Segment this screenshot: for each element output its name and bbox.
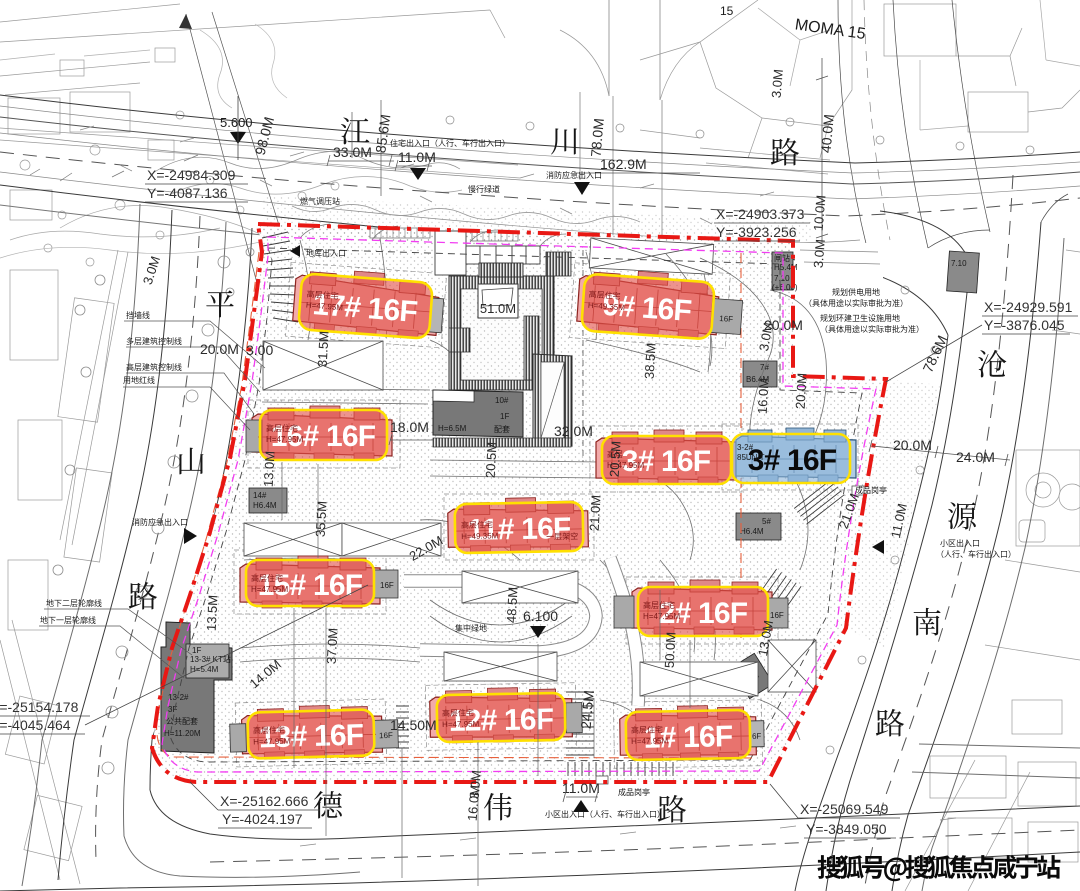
- svg-text:（人行、车行出入口）: （人行、车行出入口）: [936, 549, 1016, 559]
- svg-text:3.00: 3.00: [246, 342, 273, 358]
- svg-text:配套: 配套: [494, 424, 510, 434]
- svg-text:H6.4M: H6.4M: [740, 527, 764, 536]
- svg-text:高层住宅: 高层住宅: [442, 707, 474, 718]
- svg-text:（具体用途以实际审批为准）: （具体用途以实际审批为准）: [804, 298, 908, 308]
- svg-text:（具体用途以实际审批为准）: （具体用途以实际审批为准）: [820, 324, 924, 334]
- svg-text:13.5M: 13.5M: [204, 595, 221, 632]
- svg-text:7.10: 7.10: [774, 274, 790, 283]
- svg-text:挡墙线: 挡墙线: [126, 310, 150, 320]
- svg-text:H=47.95M: H=47.95M: [643, 612, 680, 621]
- svg-text:10#: 10#: [495, 396, 509, 405]
- svg-text:18.0M: 18.0M: [390, 419, 429, 435]
- svg-text:24.0M: 24.0M: [956, 449, 995, 465]
- svg-text:48.5M: 48.5M: [504, 587, 521, 624]
- svg-text:高层住宅: 高层住宅: [461, 519, 493, 530]
- svg-text:H=47.95M: H=47.95M: [631, 736, 669, 746]
- svg-text:Y=-4024.197: Y=-4024.197: [222, 811, 303, 827]
- svg-text:闸站: 闸站: [774, 253, 790, 263]
- svg-text:Y=-3923.256: Y=-3923.256: [716, 224, 797, 240]
- svg-text:Y=-3876.045: Y=-3876.045: [984, 317, 1065, 333]
- svg-text:85UNIT: 85UNIT: [737, 453, 765, 462]
- svg-text:16F: 16F: [770, 611, 784, 620]
- svg-text:高层住宅: 高层住宅: [266, 423, 298, 433]
- svg-text:X=-24929.591: X=-24929.591: [984, 299, 1073, 315]
- svg-text:H=47.95M: H=47.95M: [251, 585, 288, 594]
- svg-text:高层住宅: 高层住宅: [253, 725, 285, 736]
- svg-text:40.0M: 40.0M: [818, 114, 837, 154]
- svg-text:20.5M: 20.5M: [483, 442, 500, 479]
- svg-text:3F: 3F: [168, 705, 177, 714]
- svg-text:集中绿地: 集中绿地: [455, 623, 487, 633]
- svg-text:5.600: 5.600: [220, 115, 253, 130]
- svg-text:住宅出入口（人行、车行出入口）: 住宅出入口（人行、车行出入口）: [390, 138, 510, 148]
- svg-text:38.5M: 38.5M: [642, 343, 659, 380]
- svg-text:14.50M: 14.50M: [390, 717, 437, 733]
- svg-text:3.0M: 3.0M: [769, 69, 786, 99]
- svg-text:小区出入口（人行、车行出入口）: 小区出入口（人行、车行出入口）: [545, 809, 665, 819]
- svg-text:H=47.95M: H=47.95M: [266, 435, 303, 444]
- svg-text:消防应急出入口: 消防应急出入口: [132, 517, 188, 527]
- svg-text:成品岗亭: 成品岗亭: [618, 787, 650, 797]
- svg-text:11.0M: 11.0M: [562, 780, 600, 796]
- svg-text:20.0M: 20.0M: [893, 437, 932, 453]
- svg-text:16F: 16F: [719, 314, 733, 324]
- svg-text:3.0M: 3.0M: [467, 770, 484, 800]
- svg-text:规划环建卫生设施用地: 规划环建卫生设施用地: [820, 313, 900, 323]
- svg-text:X=-25162.666: X=-25162.666: [220, 793, 309, 809]
- svg-text:20.0M: 20.0M: [764, 317, 803, 333]
- svg-text:31.5M: 31.5M: [315, 331, 332, 368]
- svg-text:H=47.95M: H=47.95M: [253, 737, 291, 747]
- svg-text:13.0M: 13.0M: [261, 451, 278, 488]
- svg-text:公共配套: 公共配套: [166, 716, 198, 726]
- svg-text:X=-24984.309: X=-24984.309: [147, 167, 236, 183]
- svg-text:20.5M: 20.5M: [607, 441, 624, 478]
- svg-text:多层建筑控制线: 多层建筑控制线: [126, 336, 182, 346]
- svg-text:1F: 1F: [500, 412, 509, 421]
- svg-text:50.0M: 50.0M: [662, 632, 679, 669]
- svg-text:Y=-4087.136: Y=-4087.136: [147, 185, 228, 201]
- svg-text:H=49.35M: H=49.35M: [461, 531, 499, 541]
- svg-text:33.0M: 33.0M: [333, 144, 372, 160]
- svg-text:162.9M: 162.9M: [600, 156, 647, 172]
- svg-text:32.0M: 32.0M: [554, 423, 593, 439]
- svg-text:小区出入口: 小区出入口: [940, 538, 980, 548]
- svg-text:高层住宅: 高层住宅: [643, 600, 675, 610]
- svg-text:规划供电用地: 规划供电用地: [832, 287, 880, 297]
- svg-text:H=6.5M: H=6.5M: [438, 424, 467, 433]
- svg-text:X=-24903.373: X=-24903.373: [716, 206, 805, 222]
- svg-text:消防应急出入口: 消防应急出入口: [546, 170, 602, 180]
- svg-text:用地红线: 用地红线: [123, 375, 155, 385]
- svg-text:37.0M: 37.0M: [324, 628, 341, 665]
- svg-text:6F: 6F: [752, 732, 762, 741]
- svg-text:地库出入口: 地库出入口: [306, 248, 346, 258]
- svg-text:高层住宅: 高层住宅: [251, 573, 283, 583]
- svg-text:14#: 14#: [253, 491, 267, 500]
- svg-text:7.10: 7.10: [951, 259, 967, 268]
- svg-text:高层建筑控制线: 高层建筑控制线: [126, 362, 182, 372]
- svg-text:X=-25154.178: X=-25154.178: [0, 699, 79, 715]
- svg-text:21.0M: 21.0M: [587, 495, 604, 532]
- svg-text:16F: 16F: [380, 581, 394, 590]
- svg-text:6.100: 6.100: [523, 608, 558, 624]
- svg-text:16.0M: 16.0M: [755, 378, 772, 415]
- svg-text:高层住宅: 高层住宅: [631, 724, 663, 735]
- svg-text:燃气调压站: 燃气调压站: [300, 196, 340, 206]
- svg-text:地下一层轮廓线: 地下一层轮廓线: [40, 615, 96, 625]
- svg-text:3.0M: 3.0M: [811, 239, 828, 269]
- svg-text:3-2#: 3-2#: [737, 443, 754, 452]
- svg-text:Y=-4045.464: Y=-4045.464: [0, 717, 71, 733]
- svg-text:H6.4M: H6.4M: [253, 501, 277, 510]
- svg-text:地下二层轮廓线: 地下二层轮廓线: [46, 598, 102, 608]
- svg-text:11.0M: 11.0M: [398, 149, 436, 165]
- svg-text:20.0M: 20.0M: [793, 373, 810, 410]
- svg-text:5#: 5#: [762, 517, 771, 526]
- svg-text:10.0M: 10.0M: [811, 194, 829, 231]
- svg-text:H=11.20M: H=11.20M: [164, 729, 201, 738]
- svg-text:H=47.95M: H=47.95M: [442, 719, 480, 729]
- svg-text:成品岗亭: 成品岗亭: [855, 485, 887, 495]
- svg-text:1F: 1F: [192, 646, 201, 655]
- svg-text:35.5M: 35.5M: [313, 501, 330, 538]
- svg-text:Y=-3849.050: Y=-3849.050: [806, 821, 887, 837]
- svg-text:20.0M: 20.0M: [200, 341, 239, 357]
- svg-text:一层架空: 一层架空: [546, 531, 578, 542]
- svg-text:慢行绿道: 慢行绿道: [468, 184, 500, 194]
- svg-text:51.0M: 51.0M: [480, 301, 516, 316]
- svg-text:X=-25069.549: X=-25069.549: [800, 801, 889, 817]
- svg-text:78.0M: 78.0M: [588, 118, 607, 158]
- svg-text:15: 15: [720, 4, 734, 18]
